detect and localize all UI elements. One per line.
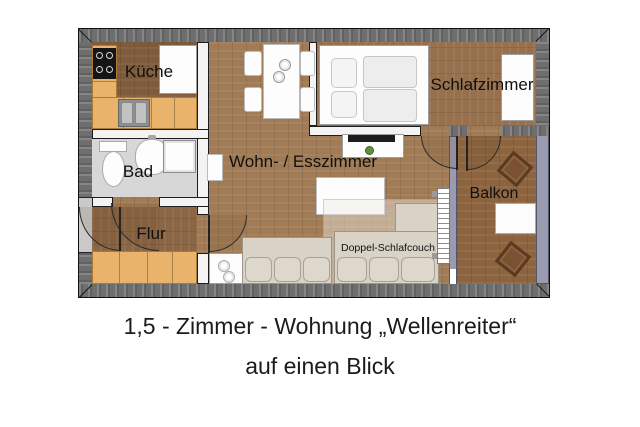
floor-plan: Doppel-Schlafcouch Küche Bad Flur <box>78 28 550 298</box>
dining-chair <box>300 51 315 76</box>
sink-basin <box>121 102 133 124</box>
wall-bottom <box>79 284 549 297</box>
pillow <box>331 58 357 88</box>
counter-divider <box>151 98 152 128</box>
sofa-cushion <box>303 257 330 282</box>
wall-shelf <box>207 154 223 181</box>
burner <box>106 52 113 59</box>
floor-plan-page: Doppel-Schlafcouch Küche Bad Flur <box>0 0 640 427</box>
radiator <box>437 188 450 264</box>
dining-chair <box>300 87 315 112</box>
plate <box>279 59 291 71</box>
plan-title: 1,5 - Zimmer - Wohnung „Wellenreiter“ <box>0 313 640 340</box>
wall-bath-hall-right <box>159 197 209 207</box>
kitchen-label: Küche <box>113 63 185 81</box>
sleep-couch-cushion <box>369 257 399 282</box>
bedroom-door-leaf <box>456 136 458 170</box>
burner <box>96 52 103 59</box>
wardrobe-divider <box>147 252 148 283</box>
dining-chair <box>244 87 262 112</box>
balcony-glass-wall-right <box>536 134 549 284</box>
wall-right-bedroom <box>536 42 549 134</box>
sleep-couch-label: Doppel-Schlafcouch <box>335 242 441 254</box>
wall-bedroom-balcony-left <box>449 126 467 136</box>
shower <box>163 140 196 173</box>
counter-divider <box>174 98 175 128</box>
hallway-label: Flur <box>129 225 173 243</box>
radiator-valve <box>432 191 437 197</box>
bedroom-label: Schlafzimmer <box>427 76 537 94</box>
wardrobe-divider <box>172 252 173 283</box>
wall-top <box>79 29 549 42</box>
radiator-valve <box>432 253 437 259</box>
sleep-couch-cushion <box>337 257 367 282</box>
sink-basin <box>135 102 147 124</box>
dining-chair <box>244 51 262 76</box>
sofa-cushion <box>245 257 272 282</box>
wall-bedroom-balcony-right <box>501 126 549 136</box>
sofa-cushion <box>274 257 301 282</box>
balcony-label: Balkon <box>462 185 526 203</box>
plate <box>273 71 285 83</box>
wardrobe-divider <box>119 252 120 283</box>
wall-bath-hall-left <box>92 197 113 207</box>
counter-divider <box>93 81 116 82</box>
balcony-wall-notch <box>450 269 456 284</box>
washer-drum <box>223 271 235 283</box>
wall-hall-living-lower <box>197 253 209 284</box>
pillow <box>331 91 357 118</box>
burner <box>96 66 103 73</box>
tv <box>348 135 395 142</box>
plan-subtitle: auf einen Blick <box>0 353 640 380</box>
sleep-couch-cushion <box>401 257 435 282</box>
balcony-door-leaf <box>466 136 468 171</box>
duvet <box>363 89 417 122</box>
hall-living-door-leaf <box>208 215 210 253</box>
bathroom-label: Bad <box>116 163 160 181</box>
duvet <box>363 56 417 88</box>
balcony-table <box>495 203 536 234</box>
burner <box>106 66 113 73</box>
living-room-label: Wohn- / Esszimmer <box>227 153 379 171</box>
hall-wardrobe <box>92 251 197 284</box>
